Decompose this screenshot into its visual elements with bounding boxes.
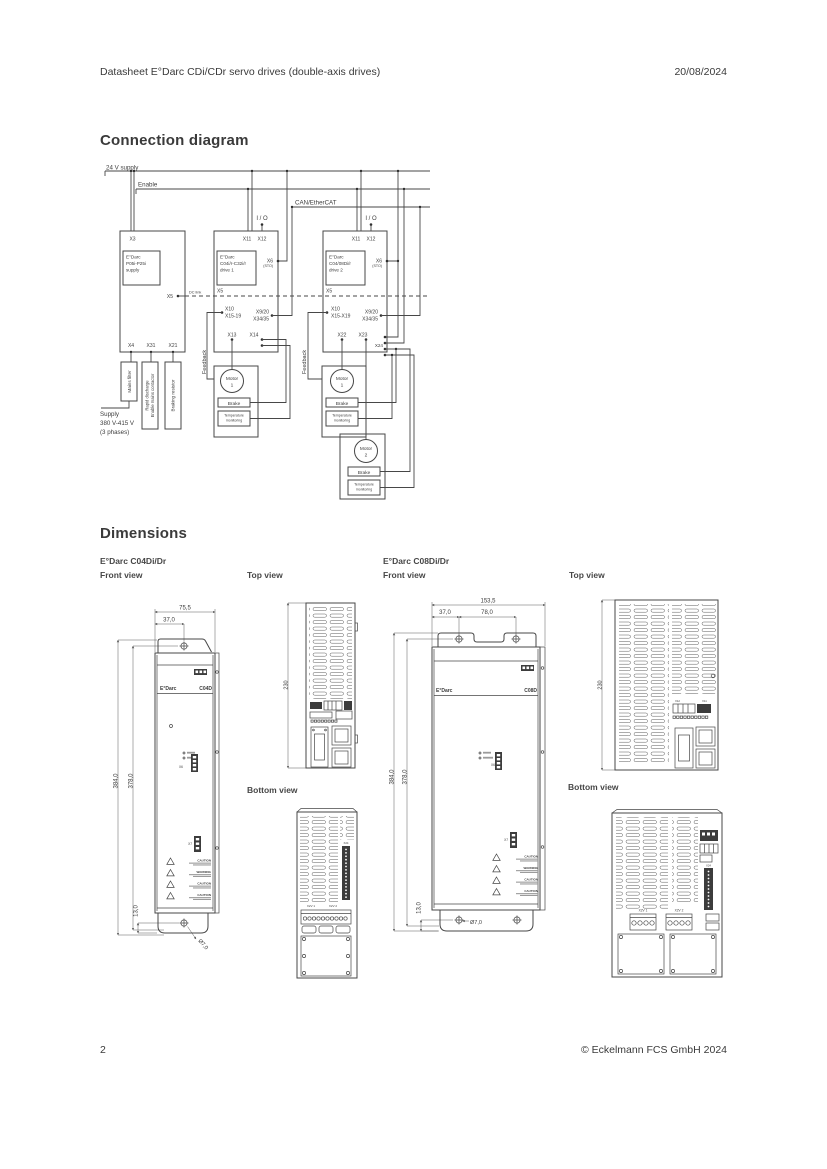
warning-warning: WARNING [524,866,539,870]
motor-number: 2 [365,453,368,459]
drive1-x12-label: X12 [258,237,267,243]
c04d-front-view-label: Front view [100,570,143,580]
drive1-x15-label: X15-19 [225,314,241,320]
mains-filter-label: Mains filter [127,370,132,393]
drive2-x22-label: X22 [338,333,347,339]
drive2-x11-label: X11 [352,237,361,243]
brake-label: Brake [358,470,371,476]
drive2-name-1: E°Darc [329,255,344,260]
vent-slots [619,604,669,764]
motor-label: Motor [336,376,349,382]
drive2-x23-label: X23 [359,333,368,339]
c08d-x24-label: X24 [706,864,711,868]
drive1-name-2: C04i/r-C32i/r [220,261,247,266]
supply-x21-label: X21 [169,343,178,349]
c04d-x7-label: X7 [188,842,192,846]
warning-caution-3: CAUTION [197,893,211,897]
c04d-x24-label: X24 [344,841,349,845]
c04d-inner-height-dim: 378,0 [129,773,135,789]
c04d-bottom-view-drawing: X24 X2V 1 X2V 2 [294,806,366,992]
motor-label: Motor [226,376,239,382]
c04d-x6-label: X6 [179,765,183,769]
c08d-top-x11-label: X11 [702,699,707,703]
drive1-x11-label: X11 [243,237,252,243]
drive1-name-3: drive 1 [220,268,234,273]
connection-diagram: 24 V supply Enable CAN/EtherCAT X3 E°Dar… [100,165,432,502]
c08d-model-plate: C08D [524,688,537,694]
c08d-front-dimensions: 153,5 37,0 78,0 384,0 378,0 13,0 Ø7,0 [390,599,546,932]
drive1-x13-label: X13 [228,333,237,339]
c08d-bottom-view-drawing: X24 X2V 1 X2V 2 [608,806,730,996]
c08d-top-modules [675,727,715,768]
vent-slots [340,816,354,840]
page-number: 2 [100,1044,106,1056]
c04d-top-view-label: Top view [247,570,283,580]
drive1-feedback-label: Feedback [202,350,208,374]
c04d-model-plate: C04D [199,686,212,692]
rapid-discharge-label: Rapid discharge [145,380,150,411]
supply-x5-label: X5 [167,294,173,300]
temp-label-1: Temperature [332,414,352,418]
c08d-fan-grilles [618,934,716,974]
mains-supply-line-1: Supply [100,411,120,418]
drive1-x920-label: X9/20 [256,310,269,316]
warning-caution-3: CAUTION [524,889,538,893]
c08d-brand-label: E°Darc [436,688,453,694]
c04d-model-label: E°Darc C04Di/Dr [100,556,166,566]
drive2-feedback-label: Feedback [302,350,308,374]
drive1-io-label: I / O [256,216,268,222]
drive2-motor1-group: Motor 1 Brake Temperature monitoring [322,366,366,437]
warning-caution-2: CAUTION [197,882,211,886]
c08d-hole-dia-dim: Ø7,0 [470,920,482,926]
c04d-x2v2-label: X2V 2 [329,904,338,908]
drive1-x10-label: X10 [225,307,234,313]
c04d-bottom-view-label: Bottom view [247,785,298,795]
c04d-hole-dia-dim: Ø7,0 [197,938,209,951]
c04d-height-dim: 384,0 [114,773,120,789]
c08d-top-x12-label: X12 [675,699,680,703]
c08d-front-view-drawing: 153,5 37,0 78,0 384,0 378,0 13,0 Ø7,0 [383,592,558,954]
drive2-x3435-label: X34/35 [362,317,378,323]
c04d-front-body: E°Darc C04D X6 X7 CAUTION WARNING [155,639,219,933]
c08d-top-view-label: Top view [569,570,605,580]
c08d-height-dim: 384,0 [390,769,396,785]
c04d-warning-block: CAUTION WARNING CAUTION CAUTION [167,858,212,900]
c04d-top-view-drawing: 230 [278,593,360,778]
c08d-hole-offset-dim: 37,0 [439,610,451,616]
document-title: Datasheet E°Darc CDi/CDr servo drives (d… [100,66,380,78]
drive2-x10-label: X10 [331,307,340,313]
supply-x4-label: X4 [128,343,134,349]
temp-label-1: Temperature [224,414,244,418]
temp-label-1: Temperature [354,483,374,487]
brake-label: Brake [336,401,349,407]
datasheet-page: Datasheet E°Darc CDi/CDr servo drives (d… [0,0,827,1169]
c08d-bottom-blocks [700,830,718,862]
c04d-x2v1-label: X2V 1 [307,904,316,908]
warning-caution-1: CAUTION [197,859,211,863]
c08d-warning-block: CAUTION WARNING CAUTION CAUTION [493,854,539,896]
c08d-depth-dim: 230 [598,680,604,689]
drive1-x3435-label: X34/35 [253,317,269,323]
c08d-x7-label: X7 [504,838,508,842]
c08d-led-legend [479,752,493,759]
drive1-x14-label: X14 [250,333,259,339]
warning-warning: WARNING [197,870,212,874]
vent-slots [616,817,668,909]
drive2-io-label: I / O [365,216,377,222]
drive1-x5-label: X5 [217,289,223,295]
temp-label-2: monitoring [226,419,242,423]
warning-caution-1: CAUTION [524,855,538,859]
supply-name-3: supply [126,268,140,273]
motor-label: Motor [360,446,373,452]
c08d-bottom-view-label: Bottom view [568,782,619,792]
drive2-name-3: drive 2 [329,268,343,273]
motor-number: 1 [231,383,234,389]
c08d-power-connectors [630,914,719,930]
c08d-x2v2-label: X2V 2 [675,909,684,913]
c04d-power-connector-row [301,910,351,924]
c08d-inner-height-dim: 378,0 [403,769,409,785]
drive1-box: I / O X11 X12 E°Darc C04i/r-C32i/r drive… [202,170,293,419]
braking-resistor-label: Braking resistor [171,379,176,411]
c04d-top-modules [311,726,351,767]
c04d-bottom-offset-dim: 13,0 [134,905,140,917]
supply-accessories: Mains filter Rapid discharge Enable main… [100,352,181,436]
c04d-fan-grille [301,936,351,976]
temp-label-2: monitoring [334,419,350,423]
c04d-hole-offset-dim: 37,0 [163,618,175,624]
brake-label: Brake [228,401,241,407]
drive1-motor1-group: Motor 1 Brake Temperature monitoring [214,366,258,437]
supply-name-1: E°Darc [126,255,141,260]
x24-pins [345,849,347,898]
warning-caution-2: CAUTION [524,878,538,882]
supply-name-2: P05i-P25i [126,261,146,266]
dc-link-label: DC link [189,291,201,295]
supply-x3-label: X3 [129,237,135,243]
supply-unit-box: X3 E°Darc P05i-P25i supply X5 X4 X31 X21 [120,170,185,353]
vent-slots [309,606,352,699]
drive2-x920-label: X9/20 [365,310,378,316]
c04d-brand-label: E°Darc [160,686,177,692]
c08d-x6-label: X6 [491,763,495,767]
c04d-width-dim: 75,5 [179,606,191,612]
drive2-x5-label: X5 [326,289,332,295]
enable-contactor-label: Enable mains contactor [150,373,155,417]
bus-can-label: CAN/EtherCAT [295,200,337,207]
copyright: © Eckelmann FCS GmbH 2024 [581,1044,727,1056]
mains-supply-line-3: (3 phases) [100,429,129,436]
c08d-x2v1-label: X2V 1 [639,909,648,913]
supply-x31-label: X31 [147,343,156,349]
drive2-name-2: C04/08Di/r [329,261,351,266]
vent-slots [672,817,698,903]
section-title-dimensions: Dimensions [100,525,187,542]
drive1-name-1: E°Darc [220,255,235,260]
c08d-width-dim: 153,5 [480,599,496,605]
bus-enable-label: Enable [138,182,158,189]
motor-number: 1 [341,383,344,389]
c08d-bottom-offset-dim: 13,0 [417,902,423,914]
section-title-connection: Connection diagram [100,132,249,149]
c08d-hole-spacing-dim: 78,0 [481,610,493,616]
drive2-x24-label: X24 [375,343,384,348]
drive2-motor2-group: Motor 2 Brake Temperature monitoring [340,434,385,499]
c04d-front-view-drawing: 75,5 37,0 384,0 378,0 13,0 Ø7,0 [110,596,234,954]
vent-slots [300,816,338,902]
temp-label-2: monitoring [356,488,372,492]
c08d-top-view-drawing: 230 X12 X11 [565,588,730,780]
c08d-front-body: E°Darc C08D X6 X7 CAUTION WARNING CAUTI [432,633,545,931]
drive1-sto-label: (STO) [263,264,273,268]
c04d-top-connectors [310,701,352,722]
vent-slots [672,604,716,694]
drive2-sto-label: (STO) [372,264,382,268]
c08d-top-connectors [673,704,711,718]
c08d-model-label: E°Darc C08Di/Dr [383,556,449,566]
drive2-x12-label: X12 [367,237,376,243]
c04d-depth-dim: 230 [284,680,290,689]
document-date: 20/08/2024 [674,66,727,78]
drive2-x15-label: X15-X19 [331,314,351,320]
c08d-front-view-label: Front view [383,570,426,580]
mains-supply-line-2: 380 V-415 V [100,420,135,427]
bus-lines: 24 V supply Enable CAN/EtherCAT [105,165,430,208]
